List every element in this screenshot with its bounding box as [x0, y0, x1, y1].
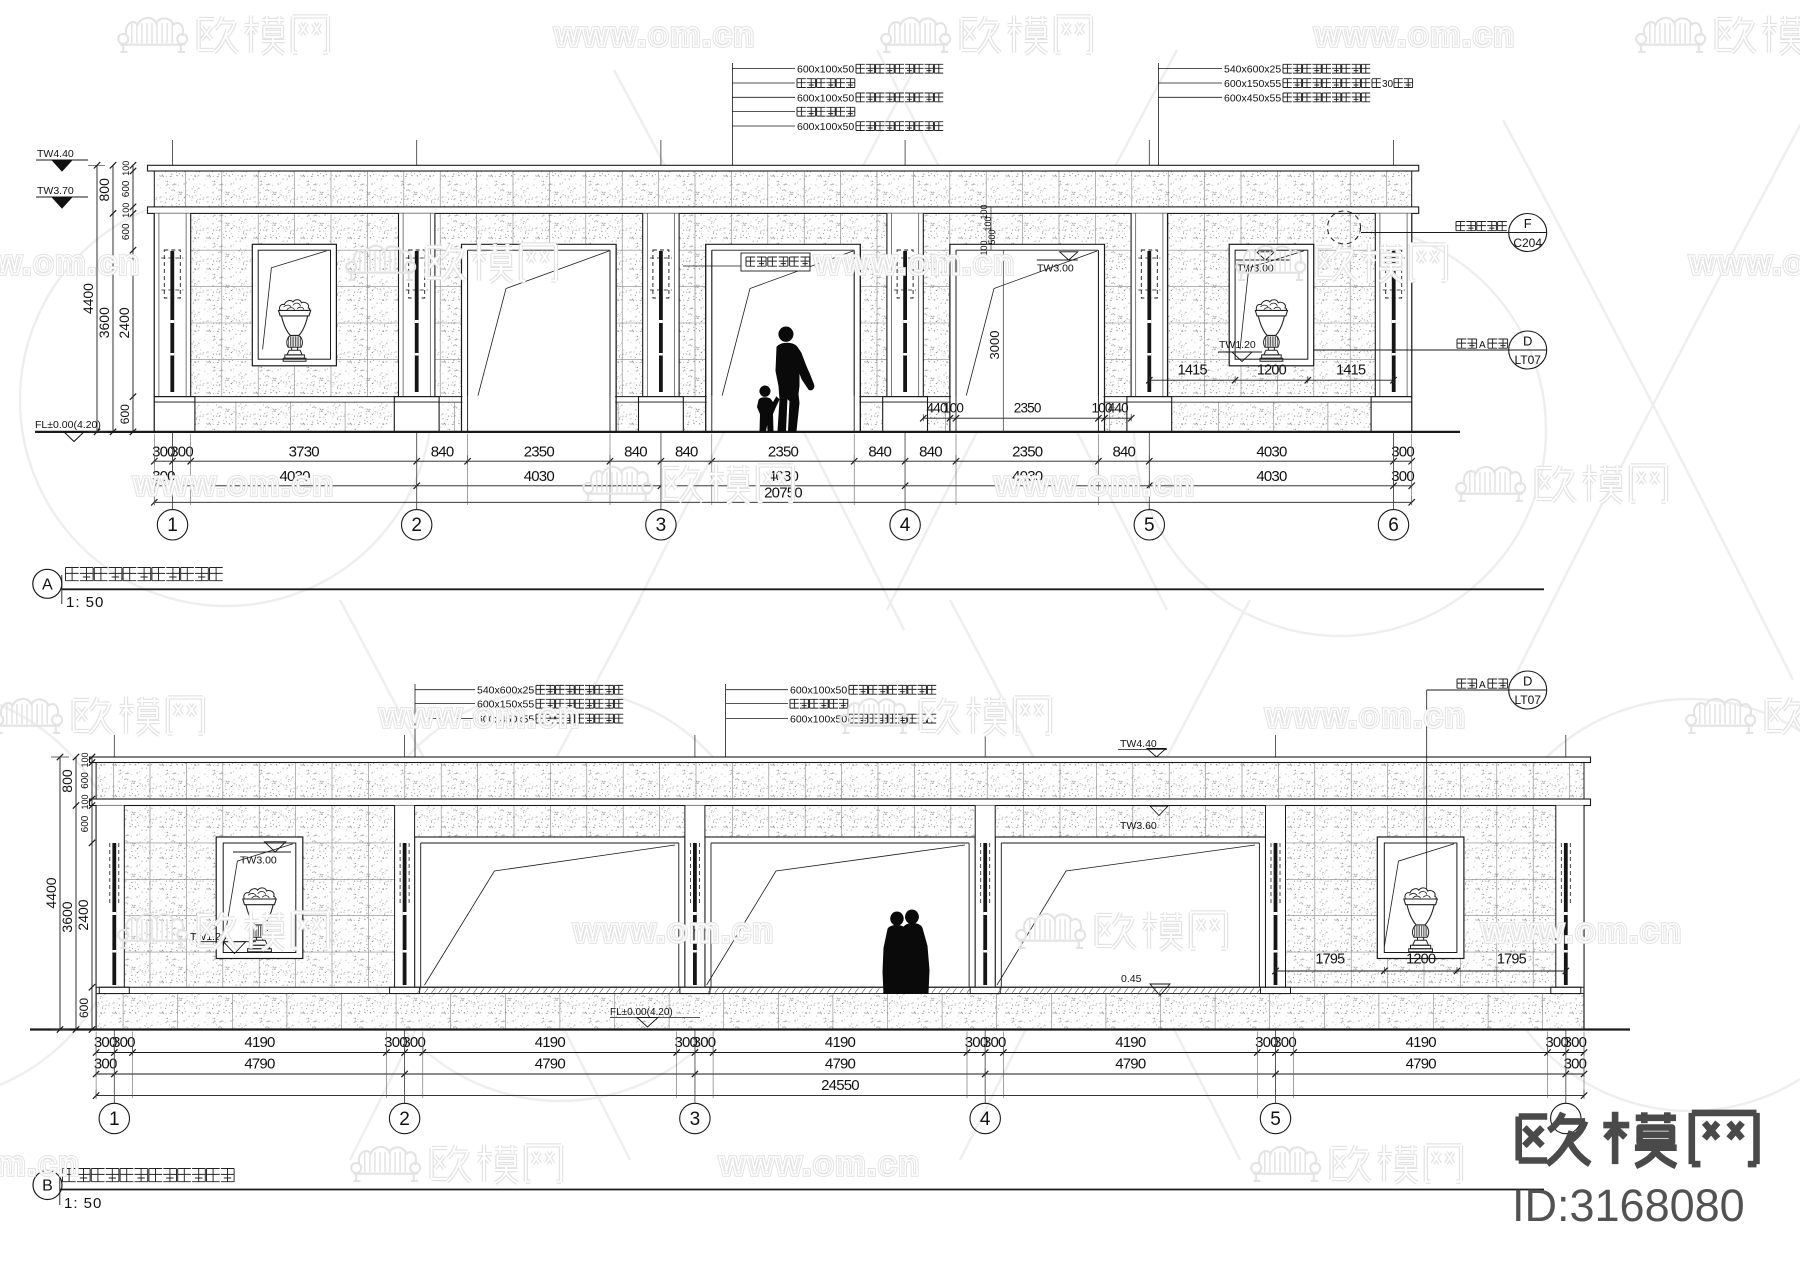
svg-text:LT07: LT07 [1514, 693, 1541, 707]
svg-text:300: 300 [402, 1034, 425, 1051]
svg-text:4190: 4190 [1115, 1034, 1146, 1051]
svg-text:4790: 4790 [244, 1056, 275, 1073]
svg-text:540x600x25: 540x600x25 [477, 685, 534, 697]
svg-text:840: 840 [431, 444, 454, 461]
svg-text:TW3.00: TW3.00 [1037, 263, 1074, 275]
svg-text:840: 840 [675, 444, 698, 461]
svg-text:F: F [1524, 216, 1532, 231]
svg-text:300: 300 [693, 1034, 716, 1051]
svg-text:600x100x50: 600x100x50 [797, 121, 854, 133]
svg-text:5: 5 [1144, 515, 1155, 536]
svg-text:www.om.cn: www.om.cn [553, 16, 755, 54]
svg-text:600: 600 [80, 772, 91, 789]
svg-text:FL±0.00(4.20): FL±0.00(4.20) [35, 419, 101, 431]
svg-text:1200: 1200 [1406, 952, 1436, 968]
svg-text:4190: 4190 [825, 1034, 856, 1051]
svg-text:LT07: LT07 [1514, 353, 1541, 367]
svg-text:www.om.cn: www.om.cn [0, 244, 141, 282]
svg-text:440: 440 [1108, 401, 1128, 416]
svg-text:TW1.20: TW1.20 [1219, 339, 1256, 351]
svg-text:www.om.cn: www.om.cn [0, 1145, 81, 1183]
svg-text:300: 300 [1564, 1056, 1587, 1073]
svg-text:3: 3 [690, 1109, 701, 1130]
svg-text:2: 2 [411, 515, 422, 536]
svg-text:3600: 3600 [59, 901, 75, 932]
svg-text:300: 300 [983, 1034, 1006, 1051]
svg-text:600x100x50: 600x100x50 [797, 92, 854, 104]
svg-text:www.om.cn: www.om.cn [132, 465, 334, 503]
svg-text:600: 600 [77, 998, 91, 1018]
svg-text:www.om.cn: www.om.cn [378, 697, 580, 735]
svg-text:4400: 4400 [43, 877, 59, 908]
svg-text:A: A [42, 577, 53, 594]
svg-text:4: 4 [980, 1109, 991, 1130]
svg-text:800: 800 [59, 769, 75, 793]
svg-text:2: 2 [399, 1109, 410, 1130]
svg-text:100: 100 [943, 401, 963, 416]
svg-text:4190: 4190 [535, 1034, 566, 1051]
svg-text:www.om.cn: www.om.cn [1264, 697, 1466, 735]
svg-text:4790: 4790 [1115, 1056, 1146, 1073]
svg-text:300: 300 [1391, 444, 1414, 461]
svg-text:A: A [1479, 680, 1486, 691]
svg-text:www.om.cn: www.om.cn [1480, 912, 1682, 950]
svg-text:600: 600 [121, 180, 132, 197]
svg-text:840: 840 [919, 444, 942, 461]
svg-text:TW3.60: TW3.60 [1120, 820, 1157, 832]
svg-text:6: 6 [1388, 515, 1399, 536]
svg-text:5: 5 [1270, 1109, 1281, 1130]
svg-text:2400: 2400 [116, 307, 132, 338]
svg-text:1795: 1795 [1315, 952, 1345, 968]
svg-text:100: 100 [121, 161, 131, 176]
svg-text:4030: 4030 [1256, 468, 1287, 485]
svg-text:www.om.cn: www.om.cn [1688, 244, 1800, 282]
svg-text:800: 800 [96, 178, 112, 202]
svg-text:2350: 2350 [524, 444, 555, 461]
svg-text:4190: 4190 [244, 1034, 275, 1051]
svg-text:2350: 2350 [1014, 401, 1041, 416]
svg-text:4400: 4400 [80, 283, 96, 314]
svg-text:1: 1 [109, 1109, 120, 1130]
svg-text:A: A [1479, 340, 1486, 351]
svg-text:1415: 1415 [1178, 363, 1208, 379]
svg-text:600x100x50: 600x100x50 [797, 64, 854, 76]
svg-text:1: 50: 1: 50 [64, 1195, 102, 1212]
svg-text:D: D [1523, 334, 1532, 349]
svg-text:TW3.00: TW3.00 [240, 855, 277, 867]
svg-text:300: 300 [94, 1056, 117, 1073]
svg-text:4190: 4190 [1406, 1034, 1437, 1051]
svg-text:840: 840 [868, 444, 891, 461]
svg-text:0.45: 0.45 [1121, 973, 1142, 985]
svg-text:www.om.cn: www.om.cn [1313, 16, 1515, 54]
svg-text:ID:3168080: ID:3168080 [1512, 1180, 1745, 1231]
svg-text:600x100x50: 600x100x50 [790, 714, 847, 726]
svg-text:300: 300 [170, 444, 193, 461]
svg-text:600: 600 [118, 404, 132, 424]
svg-text:3730: 3730 [289, 444, 320, 461]
svg-text:1795: 1795 [1497, 952, 1527, 968]
svg-text:www.om.cn: www.om.cn [718, 1145, 920, 1183]
svg-text:300: 300 [112, 1034, 135, 1051]
svg-text:4790: 4790 [825, 1056, 856, 1073]
svg-text:540x600x25: 540x600x25 [1224, 64, 1281, 76]
svg-text:3000: 3000 [987, 331, 1002, 360]
svg-text:600x100x50: 600x100x50 [790, 685, 847, 697]
svg-text:1: 50: 1: 50 [66, 594, 104, 611]
svg-text:100: 100 [80, 752, 90, 767]
svg-text:TW4.40: TW4.40 [37, 148, 74, 160]
svg-text:100: 100 [121, 203, 131, 218]
svg-text:600x450x55: 600x450x55 [1224, 92, 1281, 104]
svg-text:840: 840 [624, 444, 647, 461]
svg-text:100: 100 [80, 794, 90, 809]
svg-text:FL±0.00(4.20): FL±0.00(4.20) [610, 1007, 673, 1018]
svg-text:3: 3 [656, 515, 667, 536]
svg-text:www.om.cn: www.om.cn [572, 912, 774, 950]
svg-text:600x150x55: 600x150x55 [1224, 78, 1281, 90]
svg-text:4030: 4030 [524, 468, 555, 485]
svg-text:www.om.cn: www.om.cn [813, 244, 1015, 282]
svg-text:2400: 2400 [75, 899, 91, 930]
svg-text:TW3.70: TW3.70 [37, 185, 74, 197]
svg-text:100: 100 [983, 216, 993, 231]
svg-text:1200: 1200 [1257, 363, 1287, 379]
svg-text:4790: 4790 [1406, 1056, 1437, 1073]
svg-text:4: 4 [900, 515, 911, 536]
svg-text:1: 1 [167, 515, 178, 536]
svg-text:20750: 20750 [764, 485, 802, 502]
svg-text:4030: 4030 [1256, 444, 1287, 461]
svg-text:4790: 4790 [535, 1056, 566, 1073]
svg-text:600: 600 [121, 223, 132, 240]
svg-text:840: 840 [1112, 444, 1135, 461]
svg-text:300: 300 [1273, 1034, 1296, 1051]
svg-text:D: D [1523, 674, 1532, 689]
svg-text:300: 300 [1391, 468, 1414, 485]
svg-text:www.om.cn: www.om.cn [993, 465, 1195, 503]
svg-text:24550: 24550 [821, 1077, 859, 1094]
svg-text:3600: 3600 [96, 307, 112, 338]
svg-text:1415: 1415 [1336, 363, 1366, 379]
svg-text:300: 300 [1564, 1034, 1587, 1051]
svg-text:600: 600 [80, 815, 91, 832]
svg-text:2350: 2350 [768, 444, 799, 461]
svg-text:C204: C204 [1513, 236, 1542, 250]
svg-text:30: 30 [1382, 79, 1394, 90]
svg-text:2350: 2350 [1012, 444, 1043, 461]
